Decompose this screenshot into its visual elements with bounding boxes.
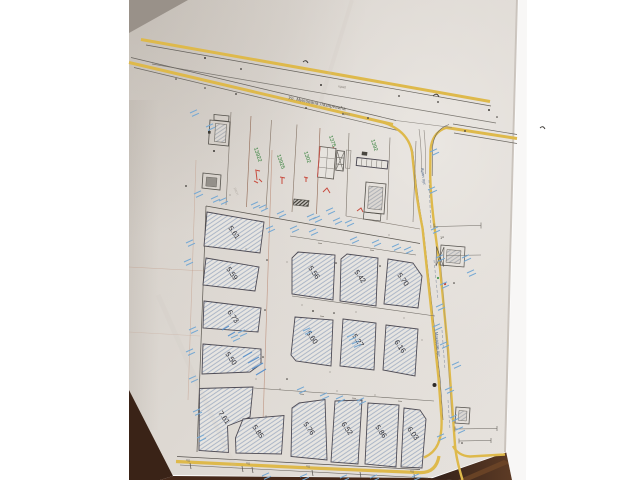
- svg-text:пд: пд: [306, 464, 310, 468]
- svg-text:пд: пд: [186, 458, 190, 462]
- svg-text:пд: пд: [246, 461, 250, 465]
- svg-text:1ª: 1ª: [440, 235, 444, 240]
- svg-text:пд: пд: [410, 469, 414, 473]
